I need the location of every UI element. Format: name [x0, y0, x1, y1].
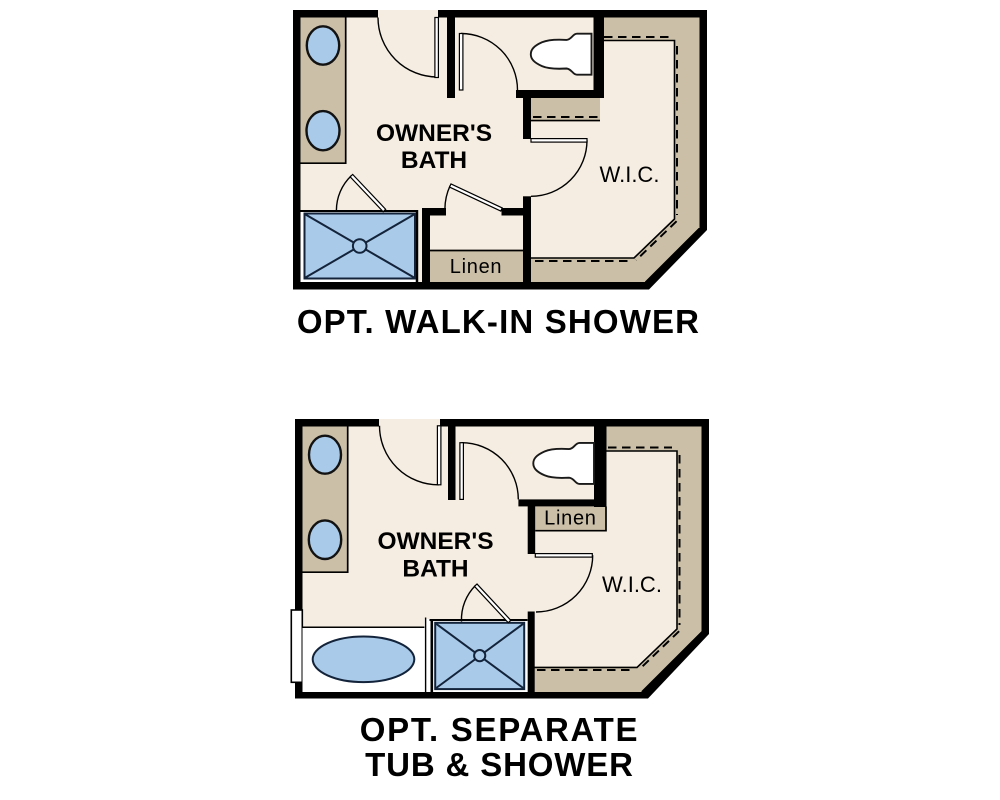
svg-text:OWNER'S: OWNER'S: [377, 528, 493, 555]
svg-text:OWNER'S: OWNER'S: [376, 120, 492, 147]
svg-text:OPT. SEPARATE: OPT. SEPARATE: [360, 711, 639, 748]
svg-text:Linen: Linen: [544, 508, 596, 530]
svg-text:W.I.C.: W.I.C.: [602, 572, 662, 597]
svg-text:OPT. WALK-IN SHOWER: OPT. WALK-IN SHOWER: [297, 303, 700, 340]
svg-text:TUB & SHOWER: TUB & SHOWER: [365, 746, 634, 783]
svg-text:BATH: BATH: [402, 556, 468, 583]
svg-text:BATH: BATH: [401, 147, 467, 174]
svg-text:W.I.C.: W.I.C.: [600, 162, 660, 187]
svg-text:Linen: Linen: [450, 256, 502, 278]
